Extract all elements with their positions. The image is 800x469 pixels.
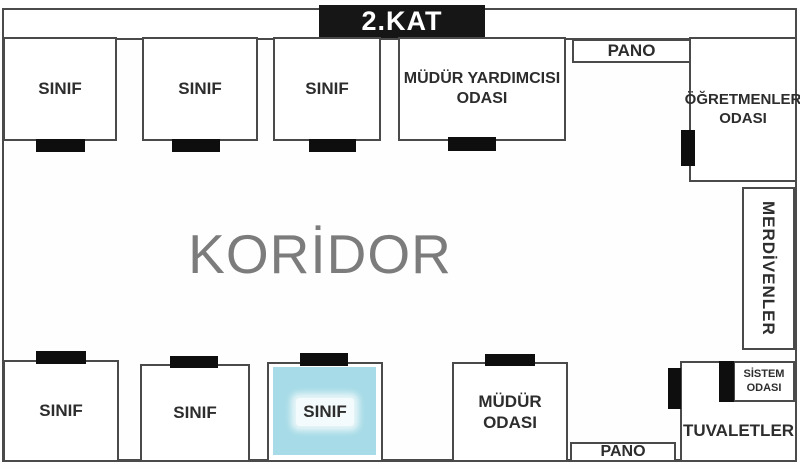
room-pano-bottom: PANO [570, 442, 676, 462]
room-label-line1: SİSTEM [744, 368, 785, 381]
room-label: SINIF [173, 402, 216, 423]
room-label: SINIF [38, 78, 81, 99]
room-mudur-yardimcisi-odasi: MÜDÜR YARDIMCISI ODASI [398, 37, 566, 141]
room-merdivenler: MERDİVENLER [742, 187, 795, 350]
corridor-label: KORİDOR [150, 218, 490, 290]
room-sinif-bottom-2: SINIF [140, 364, 250, 462]
door-sinif-bottom-2 [170, 356, 218, 368]
door-mudur-odasi [485, 354, 535, 366]
floor-title-label: 2.KAT [361, 6, 442, 37]
room-label: SINIF [178, 78, 221, 99]
room-label-line1: MÜDÜR [478, 391, 541, 412]
room-label-line1: ÖĞRETMENLER [685, 91, 800, 110]
room-label-line2: ODASI [483, 412, 537, 433]
room-sinif-top-3: SINIF [273, 37, 381, 141]
floor-title: 2.KAT [319, 5, 485, 38]
room-label: SINIF [305, 78, 348, 99]
room-label-line2: ODASI [747, 382, 782, 395]
room-label: MERDİVENLER [758, 201, 779, 336]
room-label-line2: ODASI [719, 110, 767, 129]
floor-plan: 2.KAT KORİDOR SINIF SINIF SINIF MÜDÜR YA… [0, 0, 800, 469]
room-label: SINIF [39, 400, 82, 421]
room-label: TUVALETLER [683, 420, 794, 441]
room-mudur-odasi: MÜDÜR ODASI [452, 362, 568, 462]
bottom-wall [2, 459, 797, 462]
door-mudur-yardimcisi [448, 137, 496, 151]
door-sinif-bottom-3 [300, 353, 348, 366]
door-sinif-top-3 [309, 139, 356, 152]
room-sinif-bottom-3-highlighted: SINIF [267, 362, 383, 462]
room-sinif-top-1: SINIF [3, 37, 117, 141]
room-label: SINIF [296, 398, 353, 425]
room-label-line1: MÜDÜR YARDIMCISI [404, 69, 560, 89]
room-sinif-top-2: SINIF [142, 37, 258, 141]
room-label: PANO [608, 40, 656, 61]
room-sistem-odasi: SİSTEM ODASI [733, 361, 795, 402]
room-label: PANO [600, 442, 645, 462]
door-sistem-odasi [719, 361, 734, 402]
room-ogretmenler-odasi: ÖĞRETMENLER ODASI [689, 37, 797, 182]
room-label-line2: ODASI [457, 89, 508, 109]
door-tuvaletler [668, 368, 681, 409]
door-sinif-top-1 [36, 139, 85, 152]
room-sinif-bottom-1: SINIF [3, 360, 119, 462]
door-sinif-bottom-1 [36, 351, 86, 364]
room-pano-top: PANO [572, 39, 691, 63]
door-sinif-top-2 [172, 139, 220, 152]
door-ogretmenler [681, 130, 695, 166]
